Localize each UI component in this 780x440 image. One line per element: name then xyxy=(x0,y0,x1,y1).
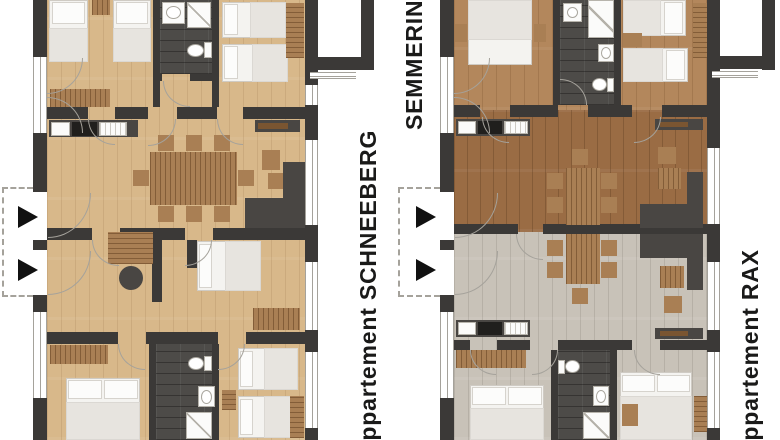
sofa-horizontal xyxy=(640,234,703,258)
sink-basin xyxy=(166,6,181,19)
sideboard-top xyxy=(660,331,688,336)
window-right-4 xyxy=(305,352,318,428)
nightstand xyxy=(534,24,546,42)
nightstand xyxy=(92,0,110,15)
window-right-3 xyxy=(707,352,720,428)
window-right-2 xyxy=(707,262,720,330)
bath-top-wall-right xyxy=(212,0,219,107)
lower-wall-c xyxy=(558,340,632,350)
bed-pillow xyxy=(240,351,253,387)
wall-left-4 xyxy=(440,398,454,440)
window-left-1 xyxy=(440,57,454,133)
wall-right-2 xyxy=(707,224,720,262)
toilet-bowl xyxy=(592,78,607,91)
toilet-bowl xyxy=(565,360,580,373)
bed-pillow xyxy=(508,387,542,405)
bottom-wall-b xyxy=(146,332,218,344)
bed-duvet xyxy=(623,0,661,36)
wall-left-2 xyxy=(440,133,454,192)
terrace-wall-bottom xyxy=(318,57,374,70)
bottom-wall-c xyxy=(246,332,305,344)
side-table xyxy=(658,168,681,189)
bed-pillow xyxy=(104,380,138,399)
bath-top-wall-left xyxy=(153,0,160,107)
toilet-tank xyxy=(607,78,614,92)
chair xyxy=(158,206,174,222)
chair xyxy=(572,149,588,165)
wardrobe xyxy=(693,3,707,58)
living-wall-c xyxy=(588,105,632,117)
sink-basin xyxy=(596,390,606,403)
wall-right-2 xyxy=(305,105,318,140)
window-right-1 xyxy=(707,148,720,224)
bath-bottom-wall-left xyxy=(149,344,156,440)
wardrobe xyxy=(286,3,304,58)
wall-left-3 xyxy=(33,295,47,312)
drainer xyxy=(504,322,528,335)
bed-duvet xyxy=(225,241,261,291)
dining-table xyxy=(150,152,237,205)
chair xyxy=(547,240,563,256)
wall-right-3 xyxy=(707,330,720,352)
bed-pillow xyxy=(68,380,102,399)
chair xyxy=(601,240,617,256)
washer-door xyxy=(567,7,578,18)
terrace-wall-bottom xyxy=(720,56,775,69)
window-right-2 xyxy=(305,140,318,225)
wall-right-5 xyxy=(305,428,318,440)
dining-table xyxy=(566,168,600,225)
bed-duvet xyxy=(264,348,298,390)
window-right-3 xyxy=(305,262,318,330)
wardrobe xyxy=(50,345,108,364)
living-wall-d xyxy=(662,105,707,117)
entry-outline xyxy=(2,187,33,297)
bed-duvet xyxy=(113,28,151,62)
bed-pillow xyxy=(240,399,253,435)
chair xyxy=(601,173,617,189)
living-wall-c xyxy=(177,107,217,119)
bath-top-wall-bottom-a xyxy=(153,74,162,81)
wall-left-4 xyxy=(33,398,47,440)
wall-right-4 xyxy=(707,428,720,440)
chair xyxy=(601,262,617,278)
chair xyxy=(186,135,202,151)
terrace-window xyxy=(712,71,758,78)
bed-duvet xyxy=(66,402,140,440)
window-right-1 xyxy=(305,85,318,105)
chair xyxy=(186,206,202,222)
toilet-tank xyxy=(204,356,212,371)
wardrobe xyxy=(290,396,304,438)
wall-right-4 xyxy=(305,330,318,352)
toilet-bowl xyxy=(187,44,204,57)
chair xyxy=(601,197,617,213)
bed-pillow xyxy=(666,50,685,80)
wall-left-2 xyxy=(33,133,47,192)
wall-left-1 xyxy=(33,0,47,57)
lower-wall-b xyxy=(497,340,530,350)
bench xyxy=(623,33,642,47)
toilet-tank xyxy=(204,42,212,58)
sideboard-top xyxy=(660,122,688,127)
shower xyxy=(588,0,614,38)
dining-table xyxy=(566,234,600,284)
side-table xyxy=(658,147,676,164)
shower xyxy=(186,412,212,439)
bed-pillow xyxy=(622,375,655,392)
bed-pillow xyxy=(224,46,238,79)
door-pier-left xyxy=(33,240,47,250)
window-left-2 xyxy=(440,312,454,398)
sideboard-top xyxy=(258,123,288,129)
sofa-vertical xyxy=(283,162,305,198)
lower-wall-d xyxy=(660,340,707,350)
bed-duvet xyxy=(470,408,544,440)
mid-wall-c xyxy=(213,228,305,240)
bottom-wall-a xyxy=(47,332,118,344)
office-wall xyxy=(152,240,162,302)
bed-duvet xyxy=(49,28,88,62)
kitchen-sink xyxy=(458,322,476,335)
bed-pillow xyxy=(52,2,85,24)
chair xyxy=(547,197,563,213)
label-appartement-semmering: SEMMERING xyxy=(401,0,428,130)
wall-right-3 xyxy=(305,225,318,262)
wall-left-1 xyxy=(440,0,454,57)
entry-outline xyxy=(398,187,440,297)
terrace-floor xyxy=(318,0,361,57)
chair xyxy=(214,206,230,222)
bed-pillow xyxy=(664,2,683,34)
bed-duvet xyxy=(252,44,288,82)
toilet-bowl xyxy=(188,357,204,370)
nightstand xyxy=(455,24,467,42)
chair xyxy=(133,170,149,186)
wardrobe xyxy=(694,396,707,432)
toilet-tank xyxy=(558,360,565,374)
living-wall-d xyxy=(243,107,305,119)
bath-top-wall-right xyxy=(614,0,621,105)
wall-left-3 xyxy=(440,295,454,312)
chair xyxy=(547,262,563,278)
bath-top-wall-left xyxy=(553,0,560,105)
bed-pillow xyxy=(657,375,690,392)
armchair xyxy=(262,150,280,170)
living-wall-b xyxy=(115,107,148,119)
terrace-window xyxy=(310,72,356,79)
shower xyxy=(583,412,610,439)
chair xyxy=(238,170,254,186)
window-left-2 xyxy=(33,312,47,398)
bed-duvet xyxy=(623,48,663,82)
lower-wall-a xyxy=(454,340,470,350)
sofa-horizontal xyxy=(245,198,305,228)
sofa-vertical xyxy=(687,172,703,228)
shower xyxy=(187,2,211,28)
bed-duvet xyxy=(468,0,532,40)
nightstand xyxy=(222,390,236,410)
terrace-floor xyxy=(720,0,762,56)
bath-top-wall-bottom-b xyxy=(190,74,219,81)
side-table xyxy=(660,266,684,288)
bath-bottom-wall-right xyxy=(610,350,617,440)
sink-basin xyxy=(201,390,212,404)
chair xyxy=(547,173,563,189)
office-chair xyxy=(119,266,143,290)
chair xyxy=(572,288,588,304)
bed-duvet xyxy=(250,2,286,38)
side-table xyxy=(664,296,682,313)
window-left-1 xyxy=(33,57,47,133)
bed-pillow xyxy=(116,2,148,24)
living-wall-b xyxy=(510,105,558,117)
bed-pillow xyxy=(224,4,238,35)
floor-plan-canvas: Appartement SCHNEEBERG SEMMERING Apparte… xyxy=(0,0,780,440)
stove xyxy=(478,322,502,335)
door-pier-left xyxy=(440,240,454,250)
bed-pillow xyxy=(472,387,506,405)
label-appartement-schneeberg: Appartement SCHNEEBERG xyxy=(355,130,382,440)
wardrobe xyxy=(253,308,300,330)
label-appartement-rax: Appartement RAX xyxy=(737,249,764,440)
bench xyxy=(622,404,638,426)
sink-basin xyxy=(601,47,611,59)
